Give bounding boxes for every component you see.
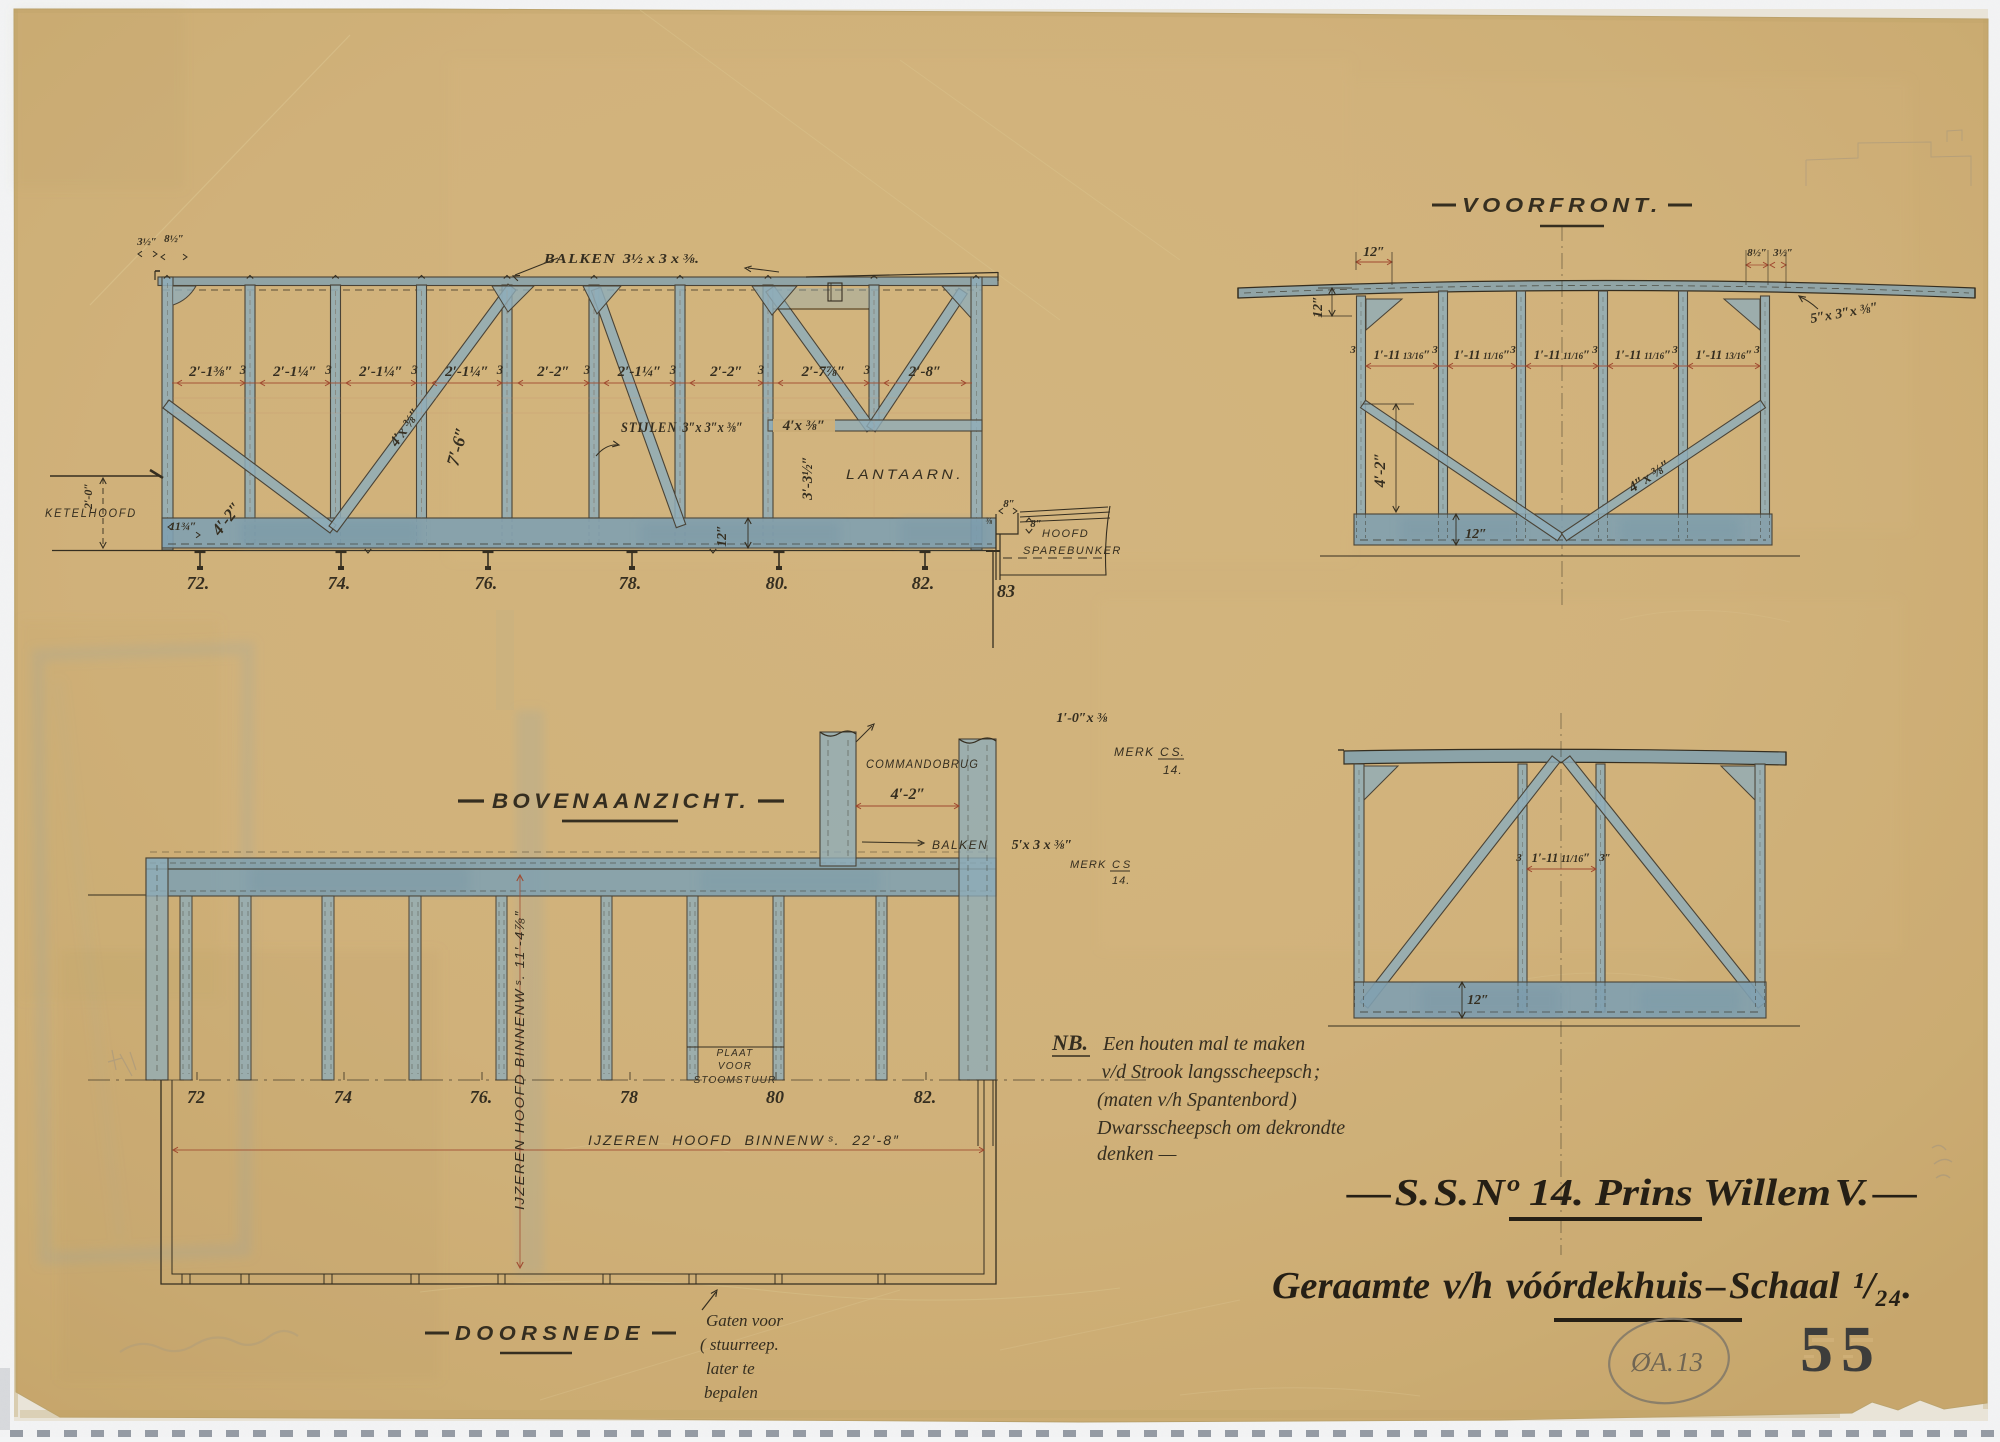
svg-text:VOORFRONT.: VOORFRONT.: [1462, 195, 1662, 217]
svg-text:82.: 82.: [914, 1087, 937, 1107]
svg-text:80: 80: [766, 1087, 784, 1107]
svg-text:STOOMSTUUR: STOOMSTUUR: [694, 1075, 777, 1086]
svg-text:3: 3: [1509, 344, 1516, 356]
svg-text:C S: C S: [1112, 859, 1131, 871]
svg-text:MERK: MERK: [1070, 859, 1107, 871]
svg-text:3: 3: [1349, 344, 1356, 356]
svg-text:3′-3½″: 3′-3½″: [800, 456, 816, 501]
svg-text:14.: 14.: [1112, 875, 1130, 887]
svg-text:11¾″: 11¾″: [170, 519, 197, 533]
svg-text:2′-1⅜″: 2′-1⅜″: [188, 364, 233, 380]
svg-text:later te: later te: [706, 1359, 755, 1378]
svg-text:Geraamte v/h vóórdekhuis – S: Geraamte v/h vóórdekhuis – Schaal ¹/₂₄.: [1272, 1265, 1912, 1307]
svg-text:2′-2″: 2′-2″: [709, 364, 743, 380]
svg-text:3: 3: [324, 362, 332, 377]
svg-text:BOVENAANZICHT.: BOVENAANZICHT.: [492, 790, 750, 813]
svg-text:DOORSNEDE: DOORSNEDE: [455, 1323, 645, 1345]
svg-text:55: 55: [1800, 1313, 1882, 1386]
svg-text:2′-7⅞″: 2′-7⅞″: [801, 364, 846, 380]
svg-text:72.: 72.: [187, 573, 210, 593]
svg-text:Dwarsscheepsch om dekrondte: Dwarsscheepsch om dekrondte: [1096, 1117, 1345, 1139]
svg-text:3″: 3″: [1598, 852, 1611, 864]
svg-text:78: 78: [620, 1087, 638, 1107]
svg-text:Een houten mal te maken: Een houten mal te maken: [1102, 1033, 1305, 1055]
svg-text:(maten v/h Spantenbord ): (maten v/h Spantenbord ): [1097, 1089, 1297, 1111]
svg-text:12″: 12″: [1465, 527, 1487, 542]
svg-text:2′-0″: 2′-0″: [81, 483, 95, 510]
svg-text:2′-2″: 2′-2″: [536, 364, 570, 380]
svg-text:3: 3: [1753, 344, 1760, 356]
svg-text:12″: 12″: [1467, 993, 1489, 1008]
svg-text:( stuurreep.: ( stuurreep.: [700, 1335, 779, 1354]
svg-text:IJZEREN HOOFD BINNENW ˢ. 11′-4: IJZEREN HOOFD BINNENW ˢ. 11′-4⅞″: [512, 910, 527, 1210]
svg-text:3: 3: [496, 362, 504, 377]
svg-text:82.: 82.: [912, 573, 935, 593]
svg-text:COMMANDOBRUG: COMMANDOBRUG: [866, 759, 979, 771]
svg-text:1′-0″x ⅜: 1′-0″x ⅜: [1056, 711, 1108, 726]
svg-text:3½″: 3½″: [1772, 247, 1793, 259]
svg-text:76.: 76.: [470, 1087, 493, 1107]
svg-text:⅜: ⅜: [986, 516, 993, 526]
svg-text:2′-1¼″: 2′-1¼″: [444, 364, 489, 380]
svg-text:NB.: NB.: [1051, 1030, 1088, 1055]
svg-text:B A L K E N 3½ x 3 x ⅜.: B A L K E N 3½ x 3 x ⅜.: [543, 252, 699, 267]
svg-text:2′-1¼″: 2′-1¼″: [358, 364, 403, 380]
svg-text:LANTAARN.: LANTAARN.: [846, 466, 964, 482]
svg-text:3: 3: [410, 362, 418, 377]
svg-text:SPAREBUNKER: SPAREBUNKER: [1023, 545, 1122, 557]
svg-text:8″: 8″: [1030, 518, 1042, 530]
svg-text:2′-8″: 2′-8″: [908, 364, 942, 380]
svg-text:2′-1¼″: 2′-1¼″: [272, 364, 317, 380]
svg-text:3: 3: [239, 362, 247, 377]
svg-text:76.: 76.: [475, 573, 498, 593]
svg-text:bepalen: bepalen: [704, 1383, 758, 1402]
svg-text:3: 3: [1671, 344, 1678, 356]
svg-text:8½″: 8½″: [1747, 247, 1767, 259]
svg-text:3: 3: [757, 362, 765, 377]
svg-text:3½″: 3½″: [136, 236, 157, 248]
svg-text:IJZEREN HOOFD BINNENW ˢ. 22: IJZEREN HOOFD BINNENW ˢ. 22′-8″: [588, 1132, 900, 1148]
svg-text:3: 3: [1431, 344, 1438, 356]
svg-text:12″: 12″: [1363, 245, 1385, 260]
svg-text:3: 3: [1591, 344, 1598, 356]
svg-text:72: 72: [187, 1087, 205, 1107]
svg-text:2′-1¼″: 2′-1¼″: [617, 364, 662, 380]
svg-text:5′x 3 x ⅜″: 5′x 3 x ⅜″: [1012, 838, 1073, 853]
svg-text:12″: 12″: [715, 525, 730, 547]
svg-text:3: 3: [669, 362, 677, 377]
svg-text:— S. S. Nº 14. Prins Willem V.: — S. S. Nº 14. Prins Willem V. —: [1346, 1172, 1917, 1214]
svg-text:14.: 14.: [1163, 763, 1183, 777]
svg-text:VOOR: VOOR: [718, 1061, 752, 1072]
svg-text:S T IJ L E N 3″x 3″x ⅜″: S T IJ L E N 3″x 3″x ⅜″: [621, 420, 743, 436]
svg-text:74.: 74.: [328, 573, 351, 593]
svg-text:v/d Strook langsscheepsch ;: v/d Strook langsscheepsch ;: [1100, 1061, 1320, 1083]
svg-text:ØA. 13: ØA. 13: [1630, 1347, 1703, 1377]
svg-text:4′-2″: 4′-2″: [890, 786, 926, 803]
svg-text:78.: 78.: [619, 573, 642, 593]
svg-text:Gaten voor: Gaten voor: [706, 1311, 783, 1330]
svg-text:8½″: 8½″: [164, 233, 184, 245]
svg-text:12″: 12″: [1311, 296, 1326, 318]
svg-text:BALKEN: BALKEN: [932, 838, 988, 852]
svg-text:denken —: denken —: [1097, 1143, 1177, 1165]
svg-text:PLAAT: PLAAT: [717, 1048, 754, 1059]
svg-text:3: 3: [1515, 852, 1522, 864]
svg-text:4′-2″: 4′-2″: [1372, 453, 1389, 489]
svg-text:C S.: C S.: [1160, 745, 1185, 759]
svg-text:80.: 80.: [766, 573, 789, 593]
svg-text:74: 74: [334, 1087, 352, 1107]
svg-text:MERK: MERK: [1114, 745, 1155, 759]
svg-text:83: 83: [997, 581, 1015, 601]
svg-text:3: 3: [863, 362, 871, 377]
svg-text:HOOFD: HOOFD: [1042, 528, 1089, 540]
svg-text:3: 3: [583, 362, 591, 377]
svg-text:4′x ⅜″: 4′x ⅜″: [782, 418, 826, 434]
